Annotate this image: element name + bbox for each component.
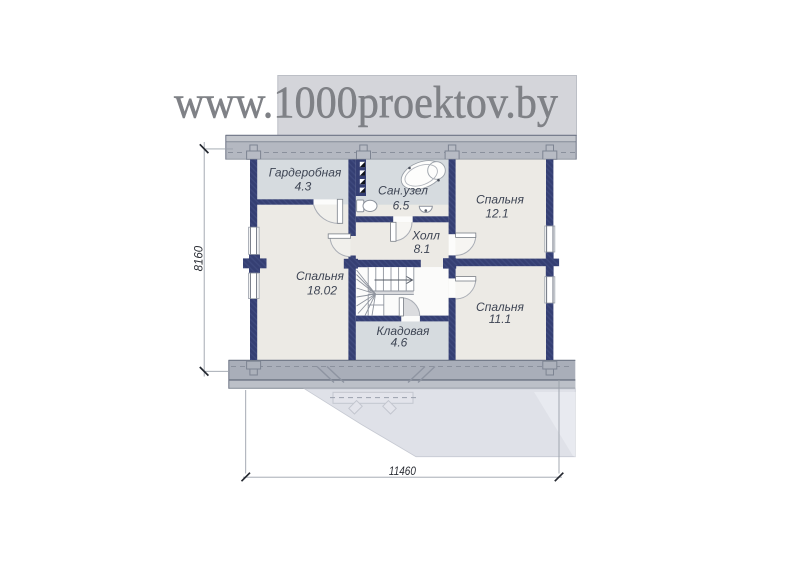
svg-text:11.1: 11.1 (489, 312, 511, 326)
svg-text:6.5: 6.5 (393, 199, 410, 213)
svg-text:4.3: 4.3 (295, 180, 312, 194)
svg-text:Холл: Холл (411, 229, 440, 243)
svg-text:www.1000proektov.by: www.1000proektov.by (174, 78, 558, 128)
svg-text:18.02: 18.02 (307, 284, 337, 298)
svg-text:Спальня: Спальня (296, 269, 344, 283)
svg-text:11460: 11460 (389, 466, 417, 478)
svg-text:12.1: 12.1 (485, 207, 508, 221)
svg-text:8160: 8160 (194, 245, 206, 271)
svg-text:Спальня: Спальня (476, 193, 524, 207)
svg-text:Сан.узел: Сан.узел (378, 184, 428, 198)
svg-text:8.1: 8.1 (414, 242, 431, 256)
svg-text:4.6: 4.6 (391, 336, 408, 350)
svg-text:Гардеробная: Гардеробная (269, 166, 342, 180)
